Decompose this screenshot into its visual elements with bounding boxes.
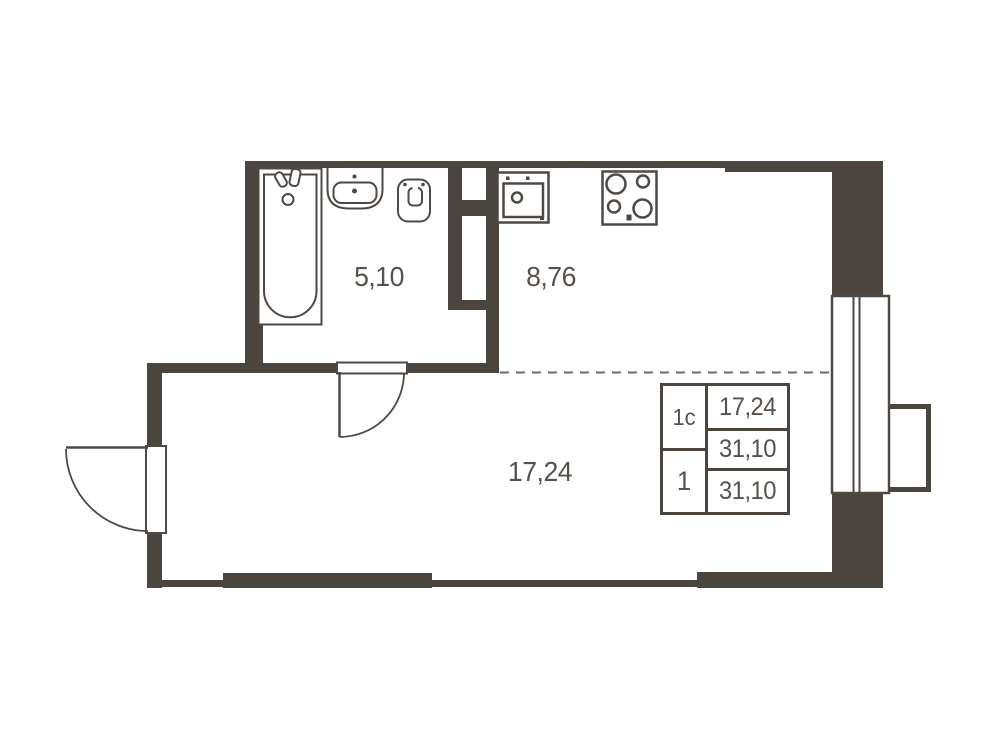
entrance-door-swing-arc bbox=[66, 449, 148, 531]
wall-left-upper bbox=[147, 363, 162, 447]
area-cell: 31,10 bbox=[710, 431, 785, 468]
apartment-info-table: 1с 1 17,24 31,10 31,10 bbox=[660, 383, 790, 515]
toilet-dot-left bbox=[403, 183, 407, 187]
entrance-door-frame bbox=[146, 446, 166, 533]
total-area-cell: 31,10 bbox=[710, 471, 785, 512]
bathroom-sink-dot-top bbox=[353, 175, 357, 179]
wall-top-thick bbox=[725, 161, 835, 172]
wall-bottom-thick-2 bbox=[697, 572, 835, 588]
living-area-cell: 17,24 bbox=[710, 386, 785, 428]
interior-door-frame bbox=[337, 363, 407, 374]
kitchen-sink-drain bbox=[512, 193, 522, 203]
balcony-basket bbox=[889, 407, 929, 490]
toilet-flush-notch bbox=[413, 186, 419, 191]
floor-plan-canvas: 5,10 8,76 17,24 1с 1 17,24 31,10 31,10 bbox=[0, 0, 1000, 750]
floor-plan-drawing bbox=[0, 0, 1000, 750]
wall-duct-cap-top bbox=[448, 200, 499, 216]
living-area-label: 17,24 bbox=[502, 456, 578, 488]
interior-door-swing-arc bbox=[340, 373, 405, 438]
bathtub-outer bbox=[259, 169, 322, 325]
wall-bathroom-bottom-left bbox=[147, 363, 337, 373]
bathroom-sink-drain bbox=[352, 189, 357, 194]
wall-bottom-thick-1 bbox=[223, 573, 432, 588]
entrance-door bbox=[66, 446, 166, 533]
wall-bathroom-bottom-right bbox=[407, 363, 499, 373]
stove-control bbox=[627, 215, 632, 221]
stove bbox=[603, 172, 657, 225]
kitchen-sink-knob-1 bbox=[506, 177, 510, 181]
walls bbox=[147, 161, 883, 588]
bathroom-area-label: 5,10 bbox=[341, 261, 417, 293]
wall-right-lower bbox=[832, 493, 883, 588]
kitchen-sink-knob-2 bbox=[526, 177, 530, 181]
toilet bbox=[398, 180, 430, 222]
wall-left-lower bbox=[147, 532, 162, 588]
toilet-dot-right bbox=[421, 183, 425, 187]
room-count-cell: 1 bbox=[664, 451, 704, 512]
wall-top-thin bbox=[245, 161, 725, 168]
bathroom-sink bbox=[328, 168, 383, 209]
wall-duct-cap-bottom bbox=[448, 300, 499, 310]
interior-door bbox=[337, 363, 407, 438]
kitchen-sink-mark bbox=[540, 216, 544, 220]
window bbox=[832, 296, 889, 493]
faucet-spout bbox=[283, 194, 294, 205]
kitchen-area-label: 8,76 bbox=[513, 261, 589, 293]
table-vertical-divider bbox=[705, 386, 708, 512]
wall-duct-left bbox=[448, 161, 462, 310]
kitchen-sink bbox=[498, 173, 549, 223]
bathtub bbox=[259, 169, 322, 325]
apartment-type-cell: 1с bbox=[664, 386, 704, 448]
wall-right-upper bbox=[832, 161, 883, 296]
